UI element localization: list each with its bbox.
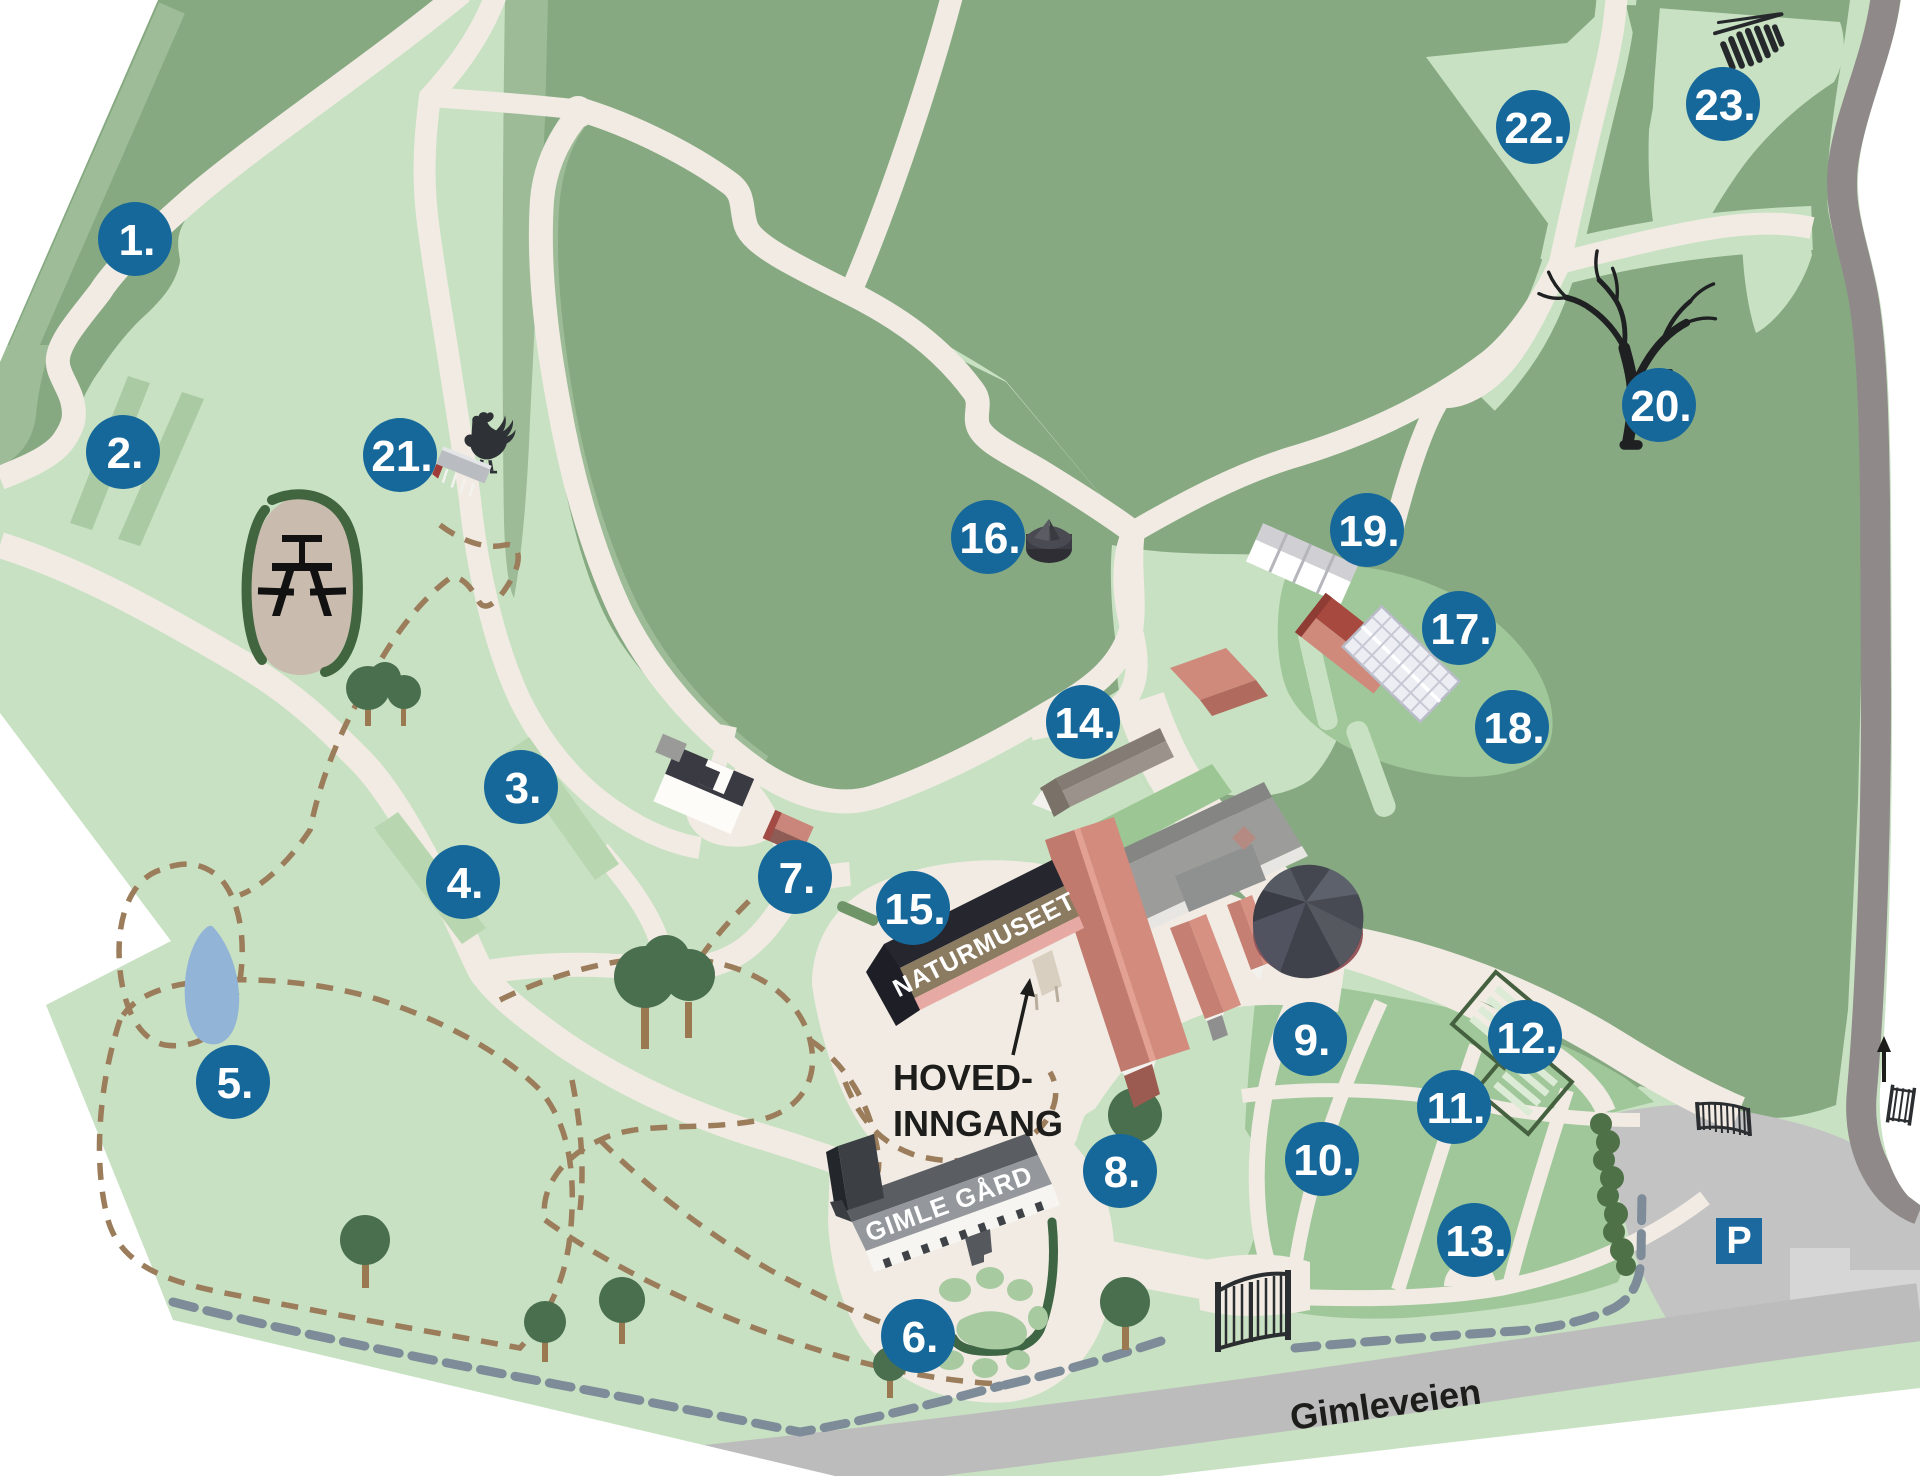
- svg-text:INNGANG: INNGANG: [893, 1103, 1063, 1144]
- svg-text:7.: 7.: [779, 854, 816, 903]
- svg-text:6.: 6.: [902, 1313, 939, 1362]
- svg-text:12.: 12.: [1496, 1014, 1557, 1063]
- svg-text:20.: 20.: [1630, 382, 1691, 431]
- svg-text:15.: 15.: [884, 885, 945, 934]
- svg-text:11.: 11.: [1427, 1084, 1486, 1133]
- svg-text:14.: 14.: [1054, 699, 1115, 748]
- svg-text:1.: 1.: [119, 216, 156, 265]
- svg-text:5.: 5.: [217, 1059, 254, 1108]
- svg-text:22.: 22.: [1504, 104, 1565, 153]
- svg-text:2.: 2.: [107, 429, 144, 478]
- svg-text:HOVED-: HOVED-: [893, 1057, 1033, 1098]
- svg-text:13.: 13.: [1445, 1217, 1506, 1266]
- svg-text:P: P: [1726, 1220, 1751, 1262]
- svg-text:17.: 17.: [1430, 605, 1491, 654]
- svg-text:18.: 18.: [1483, 704, 1544, 753]
- svg-text:21.: 21.: [371, 432, 432, 481]
- svg-text:19.: 19.: [1338, 507, 1399, 556]
- svg-text:9.: 9.: [1294, 1016, 1331, 1065]
- svg-text:10.: 10.: [1293, 1136, 1354, 1185]
- svg-text:23.: 23.: [1694, 81, 1755, 130]
- svg-text:8.: 8.: [1104, 1148, 1141, 1197]
- svg-text:3.: 3.: [505, 764, 542, 813]
- svg-text:16.: 16.: [959, 514, 1020, 563]
- svg-text:4.: 4.: [447, 859, 484, 908]
